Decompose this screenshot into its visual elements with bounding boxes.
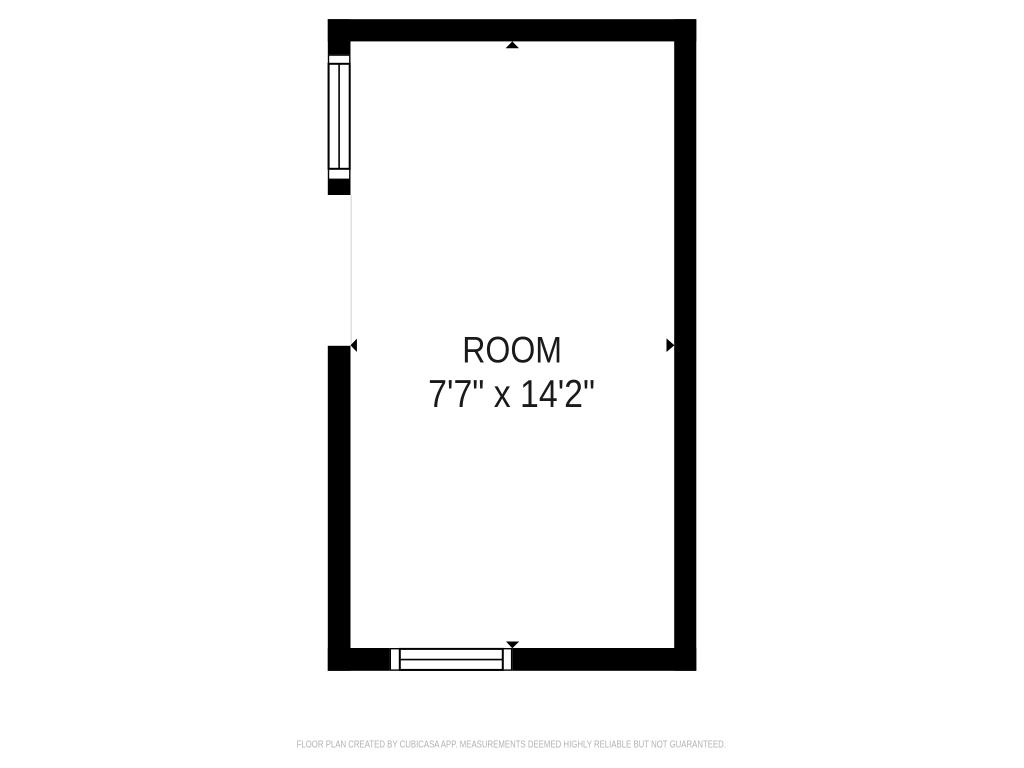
svg-text:7'7" x 14'2": 7'7" x 14'2" [428,372,595,416]
svg-text:ROOM: ROOM [462,331,562,371]
svg-text:FLOOR PLAN CREATED BY CUBICASA: FLOOR PLAN CREATED BY CUBICASA APP. MEAS… [297,738,726,749]
